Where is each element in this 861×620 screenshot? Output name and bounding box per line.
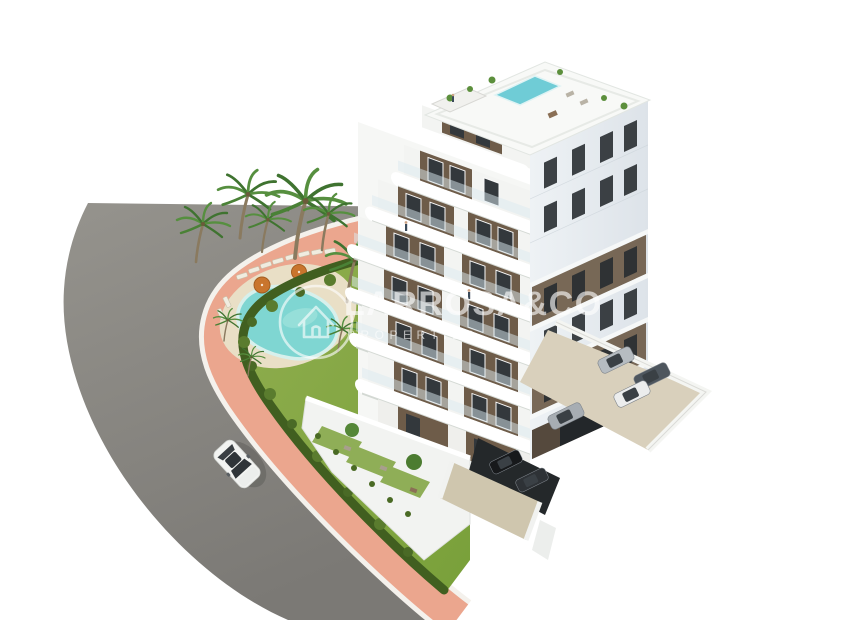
- parasol: [254, 277, 270, 293]
- render-scene: LARROSA&CO PROPERTIES: [0, 0, 861, 620]
- watermark-subtitle: PROPERTIES: [347, 328, 479, 342]
- watermark-title: LARROSA&CO: [344, 285, 603, 323]
- render-image: LARROSA&CO PROPERTIES: [0, 0, 861, 620]
